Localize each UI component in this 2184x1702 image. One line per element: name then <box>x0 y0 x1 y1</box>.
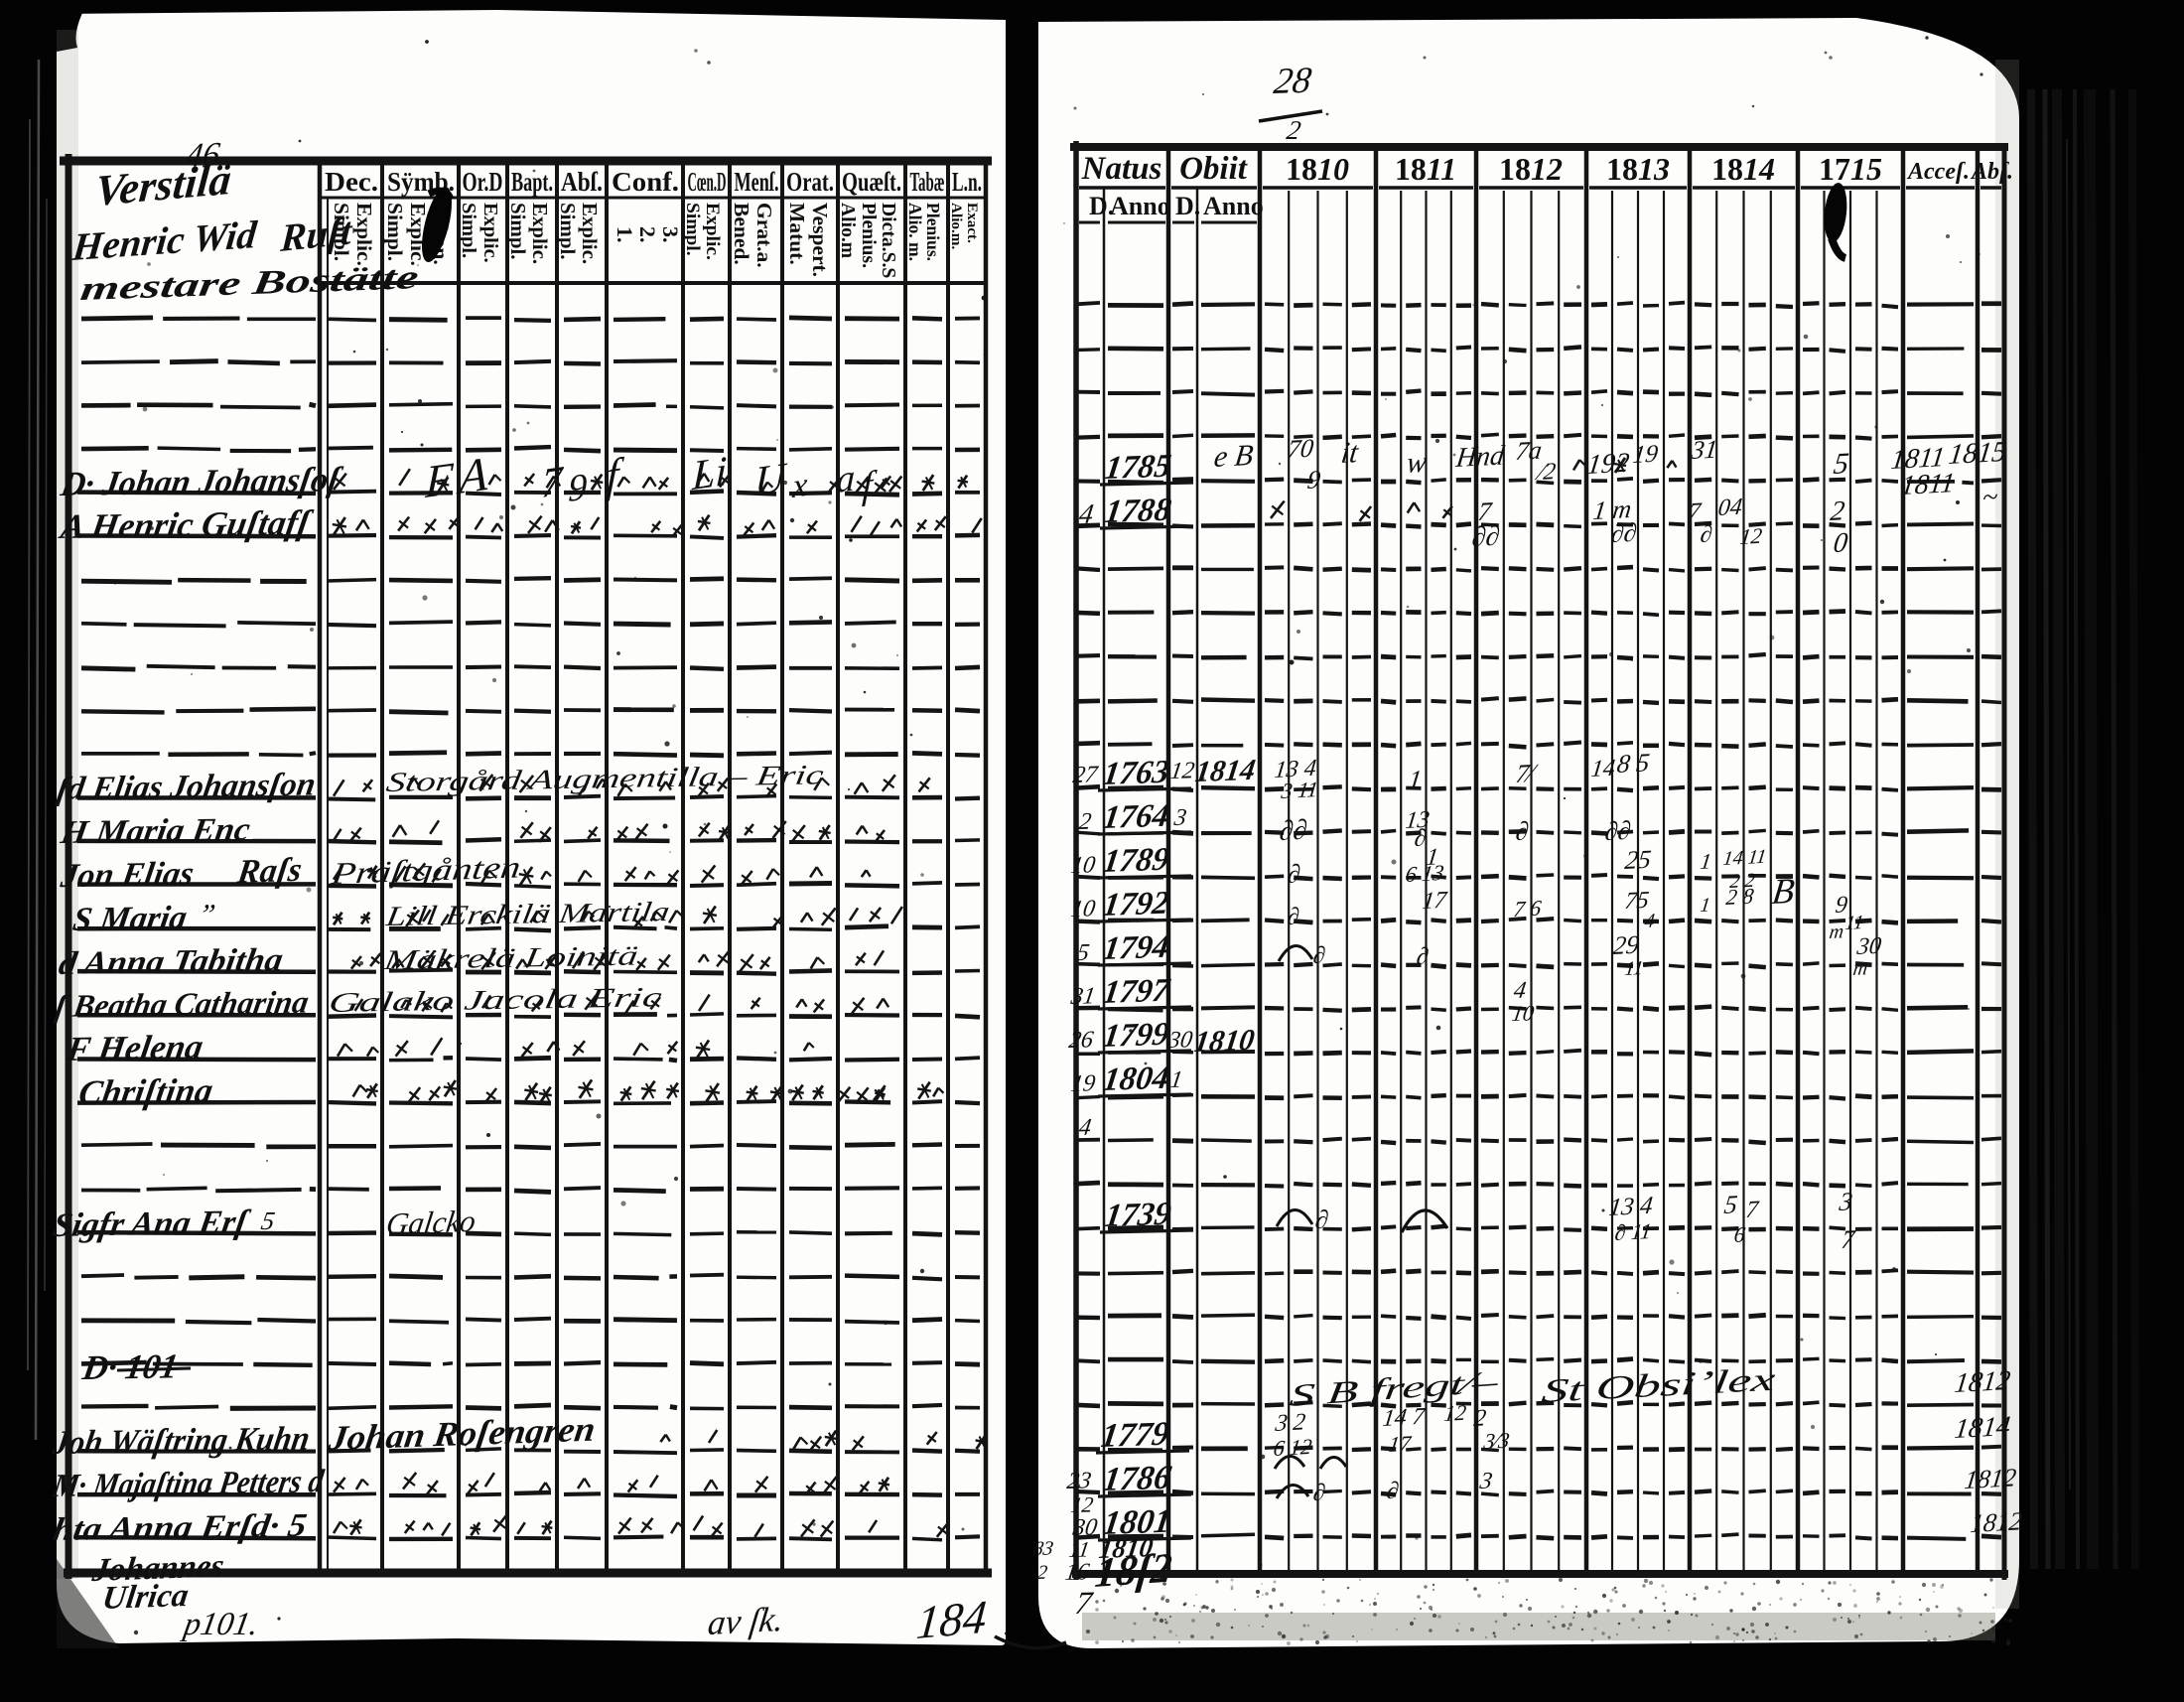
svg-text:m: m <box>1851 957 1868 980</box>
svg-text:F Helena: F Helena <box>64 1028 206 1068</box>
svg-text:Bened.: Bened. <box>730 203 753 265</box>
svg-text:M· Majaſtina Petters d: M· Majaſtina Petters d <box>50 1463 328 1504</box>
svg-text:Galcko: Galcko <box>384 1204 478 1241</box>
svg-text:25: 25 <box>1623 845 1653 875</box>
svg-text:12: 12 <box>1442 1400 1467 1426</box>
svg-text:1786: 1786 <box>1101 1459 1174 1498</box>
svg-text:e B: e B <box>1212 438 1255 474</box>
svg-text:8 5: 8 5 <box>1615 748 1651 779</box>
svg-text:Alio. m.: Alio. m. <box>905 203 925 261</box>
svg-text:Anno: Anno <box>1203 192 1264 220</box>
svg-text:Explic.: Explic. <box>578 203 602 264</box>
svg-text:3.: 3. <box>658 226 683 243</box>
svg-text:3 2: 3 2 <box>1273 1408 1306 1437</box>
svg-text:1788: 1788 <box>1103 492 1174 530</box>
svg-text:1715: 1715 <box>1819 151 1882 187</box>
svg-text:2 8: 2 8 <box>1724 884 1755 910</box>
svg-text:Mäkrelä Loinitä: Mäkrelä Loinitä <box>381 941 640 976</box>
svg-text:7: 7 <box>541 458 565 508</box>
svg-text:Orat.: Orat. <box>786 167 834 197</box>
svg-text:18ſ2: 18ſ2 <box>1093 1545 1174 1597</box>
svg-text:1815: 1815 <box>1947 436 2008 471</box>
svg-text:9: 9 <box>568 466 588 510</box>
svg-text:192: 192 <box>1585 448 1631 481</box>
svg-text:ſ Beatha Catharina: ſ Beatha Catharina <box>53 984 312 1024</box>
svg-text:1810: 1810 <box>1286 151 1349 187</box>
svg-text:Dec.: Dec. <box>325 167 378 197</box>
svg-text:7 6: 7 6 <box>1512 896 1543 922</box>
svg-text:Natus: Natus <box>1081 151 1162 187</box>
svg-text:3 11: 3 11 <box>1279 777 1319 803</box>
svg-text:∂∂: ∂∂ <box>1603 816 1632 846</box>
svg-text:30: 30 <box>1854 932 1882 960</box>
svg-text:D.: D. <box>1175 192 1200 220</box>
svg-text:Tabæ: Tabæ <box>910 167 945 197</box>
svg-text:12: 12 <box>1168 757 1196 784</box>
svg-text:1764: 1764 <box>1101 797 1171 836</box>
svg-text:∂ 11: ∂ 11 <box>1613 1218 1653 1245</box>
svg-text:83: 83 <box>1031 1538 1054 1560</box>
svg-text:F: F <box>424 454 455 509</box>
svg-text:14 7: 14 7 <box>1381 1403 1427 1432</box>
svg-text:Simpl.: Simpl. <box>506 203 530 259</box>
svg-text:Hnd: Hnd <box>1453 440 1507 474</box>
svg-text:1812: 1812 <box>1969 1506 2023 1538</box>
svg-text:Simpl.: Simpl. <box>556 203 580 259</box>
svg-text:1814: 1814 <box>1193 753 1258 788</box>
svg-text:Alio.m.: Alio.m. <box>948 203 965 249</box>
svg-text:31: 31 <box>1068 982 1097 1010</box>
svg-text:23: 23 <box>1065 1467 1093 1494</box>
svg-text:Explic.: Explic. <box>528 203 552 264</box>
svg-text:12: 12 <box>1738 523 1763 549</box>
svg-text:Raſs: Raſs <box>234 851 305 891</box>
svg-text:17: 17 <box>1387 1431 1413 1457</box>
svg-text:L.n.: L.n. <box>952 167 982 197</box>
svg-text:1814: 1814 <box>1711 151 1775 187</box>
svg-text:Ulrica: Ulrica <box>100 1577 191 1617</box>
svg-text:2.: 2. <box>635 226 660 243</box>
svg-text:1812: 1812 <box>1953 1365 2012 1399</box>
svg-text:Matut.: Matut. <box>785 203 809 265</box>
svg-text:30: 30 <box>1165 1026 1194 1054</box>
svg-text:14: 14 <box>1589 755 1616 782</box>
svg-text:D· 101: D· 101 <box>79 1347 181 1386</box>
svg-text:Conf.: Conf. <box>612 167 679 197</box>
svg-text:Exact.: Exact. <box>964 203 981 243</box>
svg-text:Chriſtina: Chriſtina <box>76 1071 215 1112</box>
svg-text:Explic.: Explic. <box>352 203 376 266</box>
svg-text:1792: 1792 <box>1101 885 1171 923</box>
svg-text:31: 31 <box>1689 435 1719 465</box>
svg-text:A Henric Guſtafſ: A Henric Guſtafſ <box>57 503 316 546</box>
svg-text:Menſ.: Menſ. <box>735 167 779 197</box>
svg-text:Ruſt: Ruſt <box>278 209 353 260</box>
svg-text:1814: 1814 <box>1953 1411 2012 1445</box>
svg-text:m: m <box>1828 921 1844 943</box>
svg-text:10: 10 <box>1510 1000 1536 1025</box>
svg-text:hta Anna Erſd· 5: hta Anna Erſd· 5 <box>51 1507 310 1548</box>
svg-text:Explic.: Explic. <box>479 203 501 263</box>
svg-text:Vespert.: Vespert. <box>808 203 832 277</box>
svg-text:Cœn.D: Cœn.D <box>688 167 727 197</box>
svg-text:Li: Li <box>691 448 728 499</box>
svg-text:1.: 1. <box>613 226 637 243</box>
svg-text:Grat.a.: Grat.a. <box>752 203 776 268</box>
svg-text:1797: 1797 <box>1101 972 1173 1011</box>
svg-text:Acceſ.: Acceſ. <box>1906 159 1970 185</box>
svg-text:ſd Elias Johansſon: ſd Elias Johansſon <box>55 767 319 807</box>
svg-text:Galako Jacola Eric: Galako Jacola Eric <box>327 982 665 1019</box>
svg-text:Plenius.: Plenius. <box>858 203 879 268</box>
svg-text:1812: 1812 <box>1963 1463 2017 1494</box>
svg-text:1763: 1763 <box>1101 754 1171 792</box>
svg-text:∂∂: ∂∂ <box>1470 521 1501 553</box>
svg-text:Jon Elias: Jon Elias <box>58 855 197 895</box>
svg-text:S Maria: S Maria <box>70 899 190 938</box>
svg-text:70: 70 <box>1286 434 1315 464</box>
svg-text:Simpl.: Simpl. <box>682 203 703 256</box>
svg-text:04: 04 <box>1716 494 1743 521</box>
svg-text:x: x <box>791 466 808 506</box>
svg-text:1789: 1789 <box>1101 841 1172 880</box>
svg-text:p101.: p101. <box>180 1606 262 1642</box>
svg-text:1811: 1811 <box>1899 468 1957 501</box>
svg-text:Simpl.: Simpl. <box>383 203 407 261</box>
svg-text:1813: 1813 <box>1606 151 1670 187</box>
svg-text:Explic.: Explic. <box>702 203 723 260</box>
svg-text:1811: 1811 <box>1395 151 1456 187</box>
svg-text:184: 184 <box>914 1592 989 1649</box>
svg-text:1739: 1739 <box>1103 1196 1174 1234</box>
svg-text:1779: 1779 <box>1099 1415 1171 1455</box>
svg-text:∂∂: ∂∂ <box>1609 518 1638 548</box>
svg-text:H Maria Enc: H Maria Enc <box>58 811 253 851</box>
svg-text:6 13: 6 13 <box>1404 860 1445 887</box>
svg-text:∂∂: ∂∂ <box>1278 815 1308 847</box>
svg-text:U: U <box>754 454 788 505</box>
svg-text:1812: 1812 <box>1499 151 1563 187</box>
svg-text:7a: 7a <box>1514 436 1544 466</box>
svg-text:D· Johan Johansſoſ: D· Johan Johansſoſ <box>58 460 345 503</box>
svg-text:11: 11 <box>1623 957 1644 980</box>
svg-text:Obiit: Obiit <box>1179 151 1248 187</box>
svg-text:1810: 1810 <box>1192 1023 1257 1059</box>
svg-text:17: 17 <box>1421 887 1448 915</box>
svg-text:Plenius.: Plenius. <box>923 203 943 261</box>
svg-text:16: 16 <box>1063 1558 1091 1586</box>
svg-text:Simpl.: Simpl. <box>458 203 479 258</box>
svg-text:13 4: 13 4 <box>1607 1193 1654 1221</box>
svg-text:28: 28 <box>1272 61 1314 102</box>
svg-text:1785: 1785 <box>1103 448 1173 487</box>
svg-text:11: 11 <box>1843 912 1864 934</box>
svg-text:19: 19 <box>1069 1069 1097 1097</box>
svg-text:10: 10 <box>1069 851 1097 879</box>
svg-text:Sigfr Ana Erſ: Sigfr Ana Erſ <box>51 1204 254 1244</box>
svg-text:d Anna Tabitha: d Anna Tabitha <box>57 941 286 982</box>
svg-text:Quæſt.: Quæſt. <box>842 167 901 197</box>
svg-text:Anno: Anno <box>1110 192 1170 220</box>
svg-text:Bapt.: Bapt. <box>511 167 553 197</box>
svg-text:Abſ.: Abſ. <box>1970 159 2013 185</box>
svg-text:1804: 1804 <box>1101 1060 1171 1098</box>
svg-text:Alio.m: Alio.m <box>837 203 858 259</box>
svg-text:Präſtgånten: Präſtgånten <box>329 849 523 891</box>
svg-text:Dicta.S.S: Dicta.S.S <box>878 203 898 278</box>
svg-text:Joh Wäſtring Kuhn: Joh Wäſtring Kuhn <box>50 1420 313 1462</box>
svg-text:3⁄3: 3⁄3 <box>1481 1428 1511 1454</box>
svg-text:Abſ.: Abſ. <box>561 167 603 197</box>
svg-text:Or.D: Or.D <box>463 167 503 197</box>
svg-text:10: 10 <box>1069 895 1097 922</box>
svg-text:26: 26 <box>1067 1026 1095 1054</box>
svg-text:29: 29 <box>1611 930 1641 960</box>
svg-text:A: A <box>456 448 489 505</box>
svg-text:1799: 1799 <box>1101 1016 1172 1055</box>
svg-text:1794: 1794 <box>1101 928 1171 967</box>
svg-text:19: 19 <box>1631 441 1660 469</box>
svg-text:14 11: 14 11 <box>1721 846 1767 870</box>
svg-text:av ſk.: av ſk. <box>706 1600 785 1642</box>
